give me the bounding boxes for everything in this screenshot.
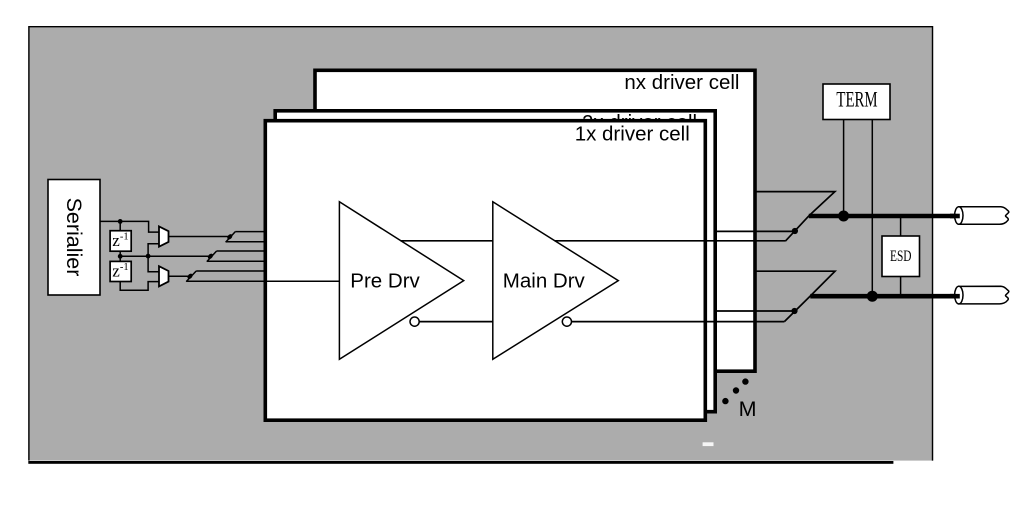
svg-text:Main Drv: Main Drv xyxy=(503,269,586,292)
svg-text:Serialier: Serialier xyxy=(62,198,86,277)
svg-text:Pre Drv: Pre Drv xyxy=(350,269,420,292)
svg-text:nx driver cell: nx driver cell xyxy=(624,71,739,94)
svg-text:1x driver cell: 1x driver cell xyxy=(575,122,690,145)
svg-text:TERM: TERM xyxy=(836,88,877,113)
svg-text:ESD: ESD xyxy=(890,247,912,264)
svg-text:M: M xyxy=(739,397,757,421)
